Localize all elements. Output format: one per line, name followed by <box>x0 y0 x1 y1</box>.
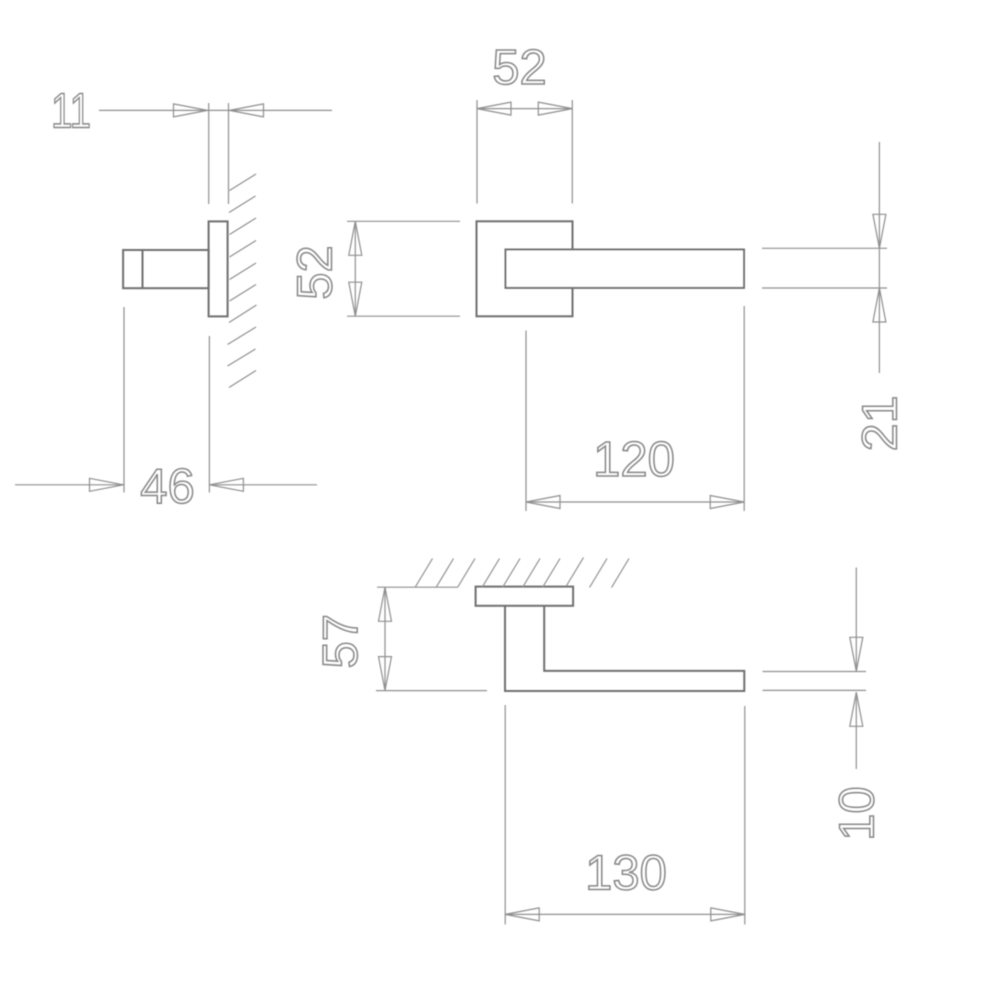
svg-text:21: 21 <box>854 395 908 451</box>
svg-text:46: 46 <box>140 460 195 514</box>
svg-text:130: 130 <box>585 847 667 901</box>
svg-text:120: 120 <box>593 433 675 487</box>
svg-text:11: 11 <box>51 85 91 139</box>
svg-text:57: 57 <box>314 614 368 669</box>
svg-text:52: 52 <box>289 245 343 300</box>
svg-text:52: 52 <box>492 41 547 95</box>
svg-text:10: 10 <box>831 786 885 841</box>
